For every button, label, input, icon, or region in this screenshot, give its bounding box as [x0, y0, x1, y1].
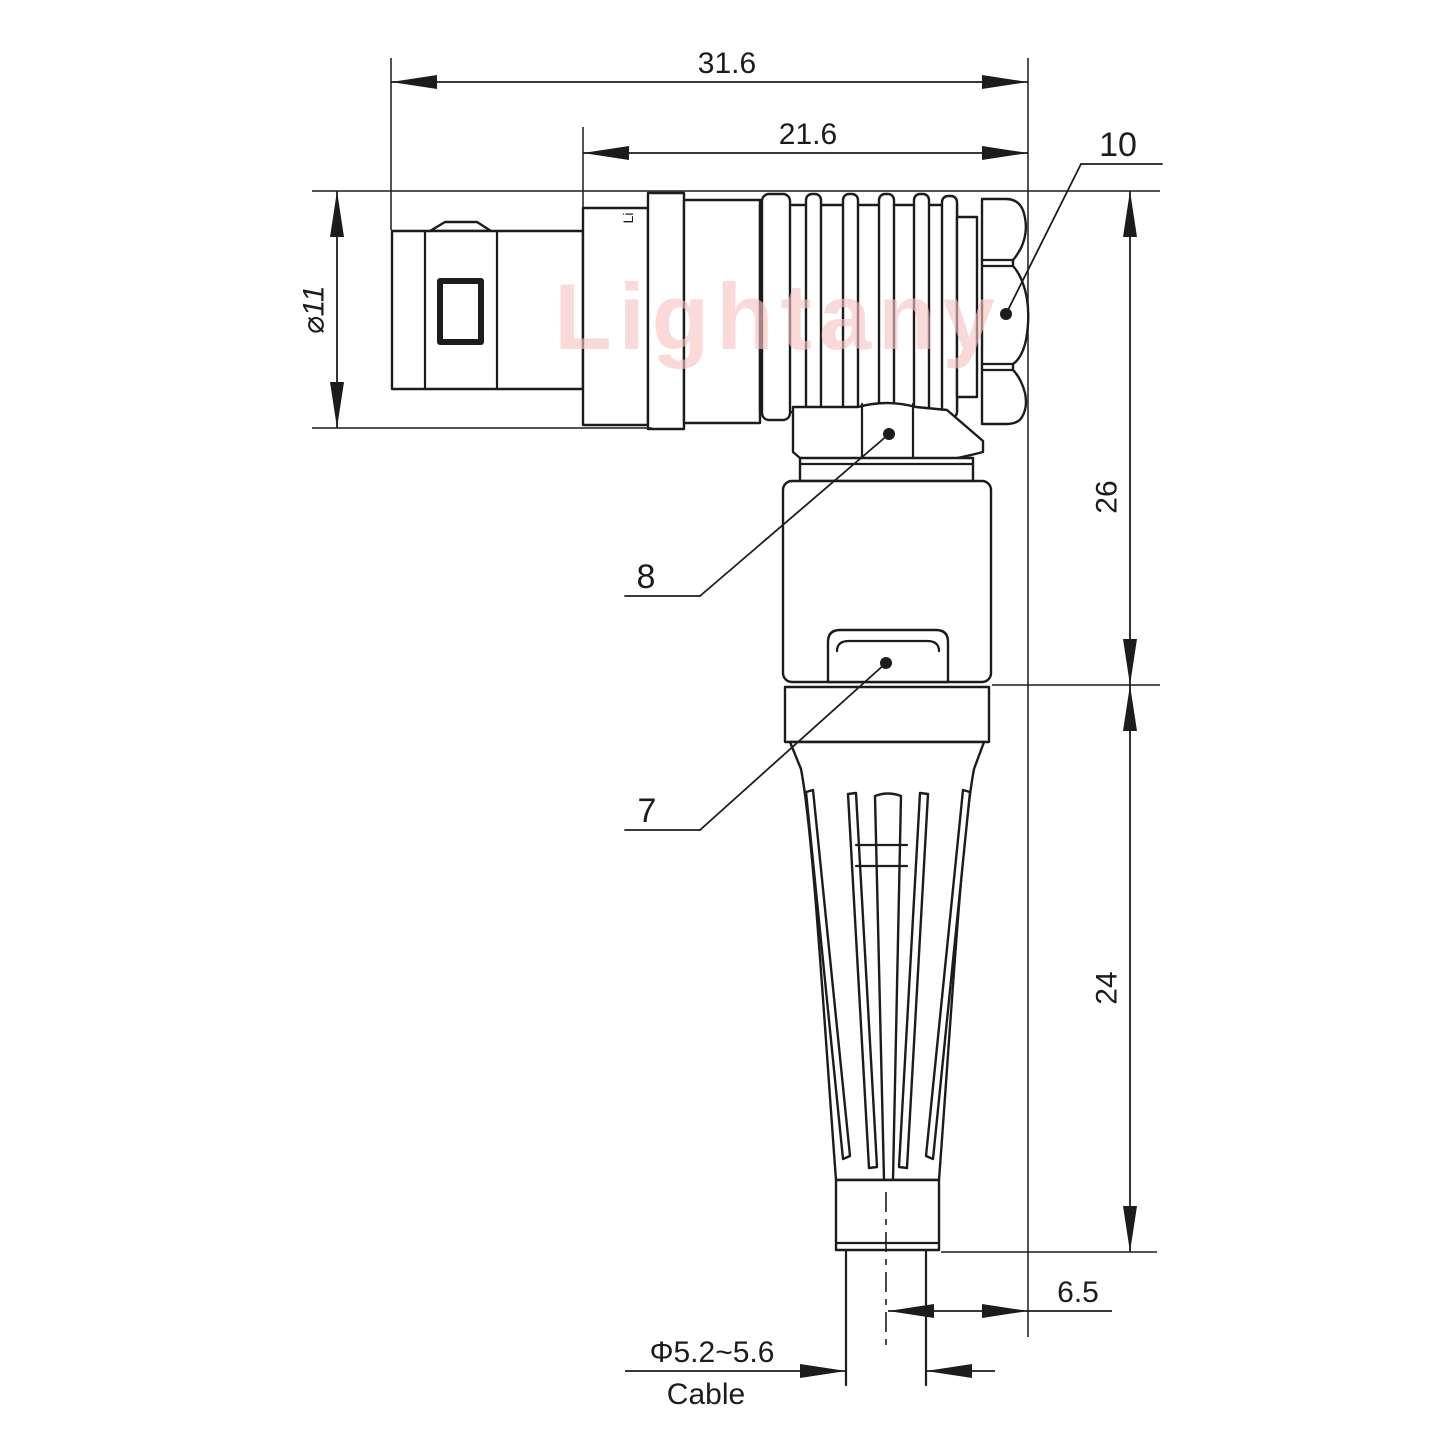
- lower-washer: [800, 458, 973, 481]
- cable-label: Cable: [667, 1378, 745, 1411]
- latch-window: [440, 281, 481, 342]
- dim-rear-length-label: 21.6: [779, 118, 837, 151]
- arrowhead: [330, 191, 344, 237]
- vertical-body: [783, 481, 991, 742]
- arrowhead: [982, 75, 1028, 89]
- part-marking: Li: [620, 213, 636, 224]
- leader-dot: [883, 428, 895, 440]
- dim-height-lower-label: 24: [1091, 971, 1124, 1004]
- arrowhead: [1123, 685, 1137, 731]
- callout-coupling-nut-label: 10: [1099, 126, 1137, 164]
- dim-height-lower: 24: [1091, 685, 1138, 1252]
- dim-cable-offset: 6.5: [888, 1276, 1112, 1318]
- dim-cable-offset-label: 6.5: [1057, 1276, 1099, 1309]
- connector-technical-drawing: Lightany Li 31.6 21.6 ⌀11 26: [0, 0, 1440, 1440]
- arrowhead: [982, 1304, 1028, 1318]
- arrowhead: [888, 1304, 934, 1318]
- arrowhead: [926, 1364, 972, 1378]
- dim-cable-diameter: Φ5.2~5.6 Cable: [625, 1336, 995, 1411]
- arrowhead: [583, 146, 629, 160]
- dim-plug-diameter: ⌀11: [298, 191, 345, 428]
- dim-cable-diameter-label: Φ5.2~5.6: [650, 1336, 775, 1369]
- callout-latch-button-label: 7: [638, 792, 657, 830]
- arrowhead: [1123, 1206, 1137, 1252]
- arrowhead: [391, 75, 437, 89]
- dim-plug-diameter-label: ⌀11: [298, 285, 331, 334]
- dim-overall-length-label: 31.6: [698, 47, 756, 80]
- arrowhead: [1123, 191, 1137, 237]
- dim-overall-length: 31.6: [391, 47, 1028, 89]
- dim-height-upper-label: 26: [1091, 480, 1124, 513]
- arrowhead: [800, 1364, 846, 1378]
- drawing-canvas: Lightany Li 31.6 21.6 ⌀11 26: [0, 0, 1440, 1440]
- dim-height-upper: 26: [1091, 191, 1138, 685]
- connector-outline: [392, 193, 1028, 1385]
- leader-dot: [880, 657, 892, 669]
- latch-button: [828, 630, 948, 682]
- strain-relief-cone: [790, 742, 984, 1180]
- watermark-text: Lightany: [554, 264, 1002, 369]
- leader-dot: [1000, 308, 1012, 320]
- cable-bushing: [836, 1180, 939, 1250]
- barrel-key-bump: [430, 222, 491, 231]
- dim-rear-length: 21.6: [583, 118, 1028, 160]
- arrowhead: [330, 382, 344, 428]
- arrowhead: [982, 146, 1028, 160]
- callout-back-nut-label: 8: [637, 558, 656, 596]
- arrowhead: [1123, 639, 1137, 685]
- bushing-collar: [785, 687, 989, 742]
